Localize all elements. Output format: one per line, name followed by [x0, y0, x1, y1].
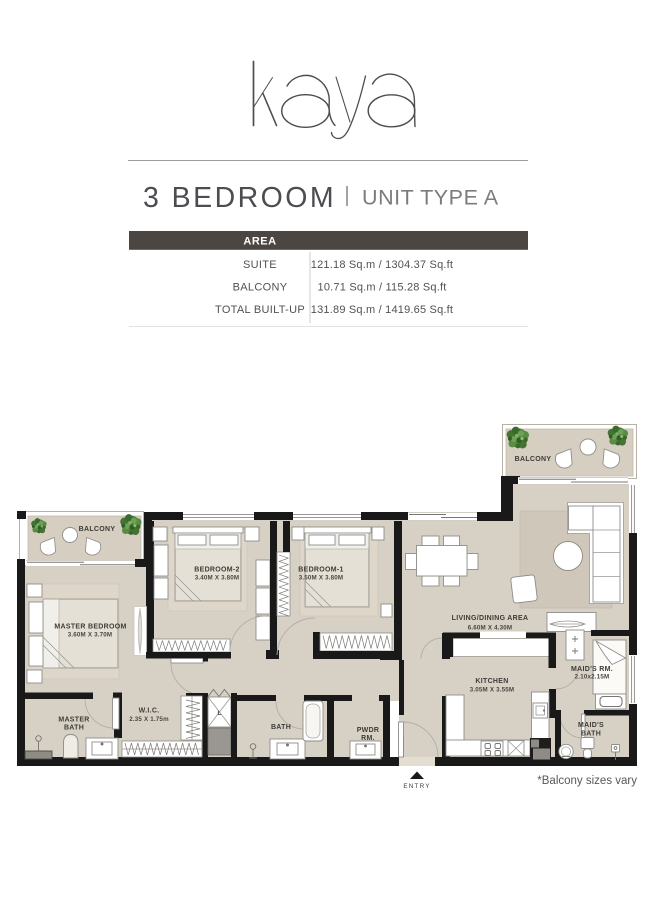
- svg-text:PWDR: PWDR: [357, 727, 380, 734]
- svg-text:BATH: BATH: [64, 725, 84, 732]
- svg-text:BATH: BATH: [271, 724, 291, 731]
- svg-text:BALCONY: BALCONY: [515, 456, 552, 463]
- svg-text:ENTRY: ENTRY: [403, 783, 430, 790]
- svg-text:3.60M X 3.70M: 3.60M X 3.70M: [68, 632, 113, 639]
- svg-text:3 BEDROOM: 3 BEDROOM: [143, 182, 336, 214]
- svg-text:AREA: AREA: [243, 235, 276, 247]
- svg-text:*Balcony sizes vary: *Balcony sizes vary: [537, 775, 637, 787]
- svg-text:L: L: [218, 710, 222, 717]
- svg-text:BATH: BATH: [581, 731, 601, 738]
- svg-text:MASTER: MASTER: [58, 717, 89, 724]
- svg-text:MAID'S: MAID'S: [578, 722, 604, 729]
- svg-text:LIVING/DINING AREA: LIVING/DINING AREA: [452, 615, 529, 622]
- svg-text:SUITE: SUITE: [243, 259, 277, 271]
- svg-text:BALCONY: BALCONY: [233, 282, 288, 294]
- svg-text:3.05M X 3.55M: 3.05M X 3.55M: [470, 687, 515, 694]
- svg-text:W.I.C.: W.I.C.: [139, 708, 160, 715]
- svg-text:3.50M X 3.80M: 3.50M X 3.80M: [299, 575, 344, 582]
- svg-text:3.40M X 3.80M: 3.40M X 3.80M: [195, 575, 240, 582]
- svg-text:6.60M X 4.30M: 6.60M X 4.30M: [468, 625, 513, 632]
- svg-text:BEDROOM-2: BEDROOM-2: [194, 567, 239, 574]
- svg-text:131.89 Sq.m / 1419.65 Sq.ft: 131.89 Sq.m / 1419.65 Sq.ft: [311, 304, 453, 316]
- svg-text:BEDROOM-1: BEDROOM-1: [298, 567, 343, 574]
- svg-text:TOTAL BUILT-UP: TOTAL BUILT-UP: [215, 304, 305, 316]
- svg-text:10.71 Sq.m / 115.28 Sq.ft: 10.71 Sq.m / 115.28 Sq.ft: [318, 282, 447, 294]
- svg-text:2.10x2.15M: 2.10x2.15M: [575, 674, 610, 681]
- svg-text:2.35 X 1.75m: 2.35 X 1.75m: [129, 716, 169, 723]
- svg-text:MASTER BEDROOM: MASTER BEDROOM: [54, 624, 126, 631]
- svg-text:121.18 Sq.m / 1304.37 Sq.ft: 121.18 Sq.m / 1304.37 Sq.ft: [311, 259, 453, 271]
- svg-text:UNIT TYPE A: UNIT TYPE A: [362, 186, 499, 210]
- svg-text:MAID'S RM.: MAID'S RM.: [571, 666, 613, 673]
- svg-text:KITCHEN: KITCHEN: [475, 678, 508, 685]
- svg-text:BALCONY: BALCONY: [79, 526, 116, 533]
